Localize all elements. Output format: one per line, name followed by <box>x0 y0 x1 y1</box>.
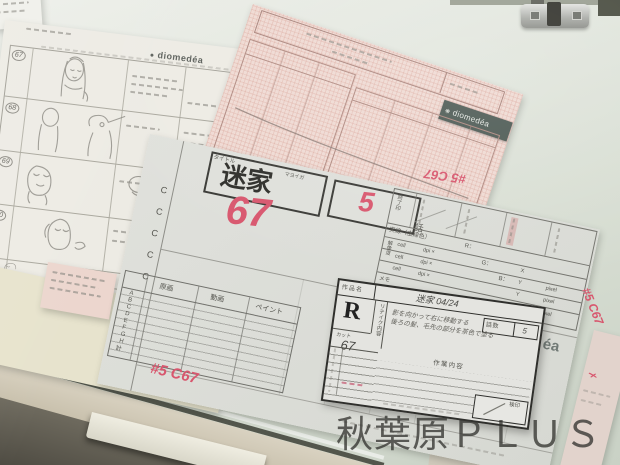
staff-row-label: E <box>123 318 128 325</box>
storyboard-cut-number: 70 <box>0 209 7 222</box>
staff-row-label: C <box>126 304 131 311</box>
staff-row-label: H <box>119 338 124 345</box>
staff-header-douga: 動画 <box>210 294 225 304</box>
x-label: X <box>520 268 525 274</box>
red-mark-edge: ✗ <box>586 371 597 380</box>
rgb-label-r: R： <box>464 243 475 251</box>
margin-label: C <box>160 186 168 196</box>
pixel-label: pixel <box>542 297 554 305</box>
storyboard-cut-number: 67 <box>11 49 26 62</box>
margin-label: C <box>146 250 154 260</box>
y-label: Y <box>515 292 520 298</box>
y-label: Y <box>518 280 523 286</box>
episode-count-label: 話数 <box>485 322 499 330</box>
retake-mark: R <box>342 298 363 324</box>
staff-table: 原画 動画 ペイント A B C D E F G H 計 <box>107 270 301 394</box>
bracket-screw-left <box>530 11 540 20</box>
storyboard-cut-number: 69 <box>0 155 13 168</box>
cut-number-handwriting: 67 <box>224 190 272 234</box>
photo-anime-production-documents: ● diomedéa 67 68 69 70 <box>0 0 620 465</box>
display-rail-corner <box>598 0 620 16</box>
staff-row-label: G <box>120 331 126 338</box>
finish-stamp-label: 終了印 <box>394 194 403 211</box>
cell-label: cell <box>392 265 401 272</box>
staff-header-paint: ペイント <box>255 304 284 317</box>
storyboard-cut-number: 68 <box>5 102 20 115</box>
red-note-side-edge: #5 C67 <box>580 286 606 326</box>
sketch-two-figures <box>24 103 149 165</box>
margin-label: C <box>151 229 159 239</box>
rgb-label-b: B： <box>498 276 509 284</box>
bracket-screw-right <box>572 11 582 20</box>
staff-row-label: F <box>122 325 127 332</box>
dpi-label: dpi × <box>417 271 430 279</box>
staff-row-label: D <box>124 311 129 318</box>
margin-label: C <box>155 207 163 217</box>
resolution-label: 解像度 <box>384 240 392 256</box>
pixel-label: pixel <box>545 286 557 294</box>
sketch-girl-longhair <box>33 51 118 106</box>
dpi-label: dpi × <box>422 247 435 255</box>
episode-number-handwriting: 5 <box>357 188 375 217</box>
memo-label: メモ <box>378 276 390 284</box>
dpi-label: dpi × <box>420 259 433 267</box>
episode-count-value: 5 <box>522 327 528 336</box>
bracket-slot <box>547 2 561 26</box>
staff-row-label: B <box>127 297 132 304</box>
cell-label: cell <box>397 242 406 249</box>
storyboard-header-handwriting <box>26 28 72 36</box>
diomedea-mark-icon: ❋ <box>444 109 451 116</box>
staff-header-genga: 原画 <box>159 283 174 293</box>
rgb-label-g: G： <box>481 260 493 268</box>
partial-diomedea-logo: éa <box>541 336 560 354</box>
staff-row-label: A <box>129 290 134 297</box>
card-workname-divider <box>373 285 376 299</box>
staff-row-label: 計 <box>115 346 122 353</box>
cell-label: cell <box>394 254 403 261</box>
work-name-label: 作品名 <box>341 285 363 294</box>
watermark-text: 秋葉原ＰＬＵＳ <box>336 416 602 453</box>
main-line-label: 実線（主線色） <box>389 227 431 242</box>
